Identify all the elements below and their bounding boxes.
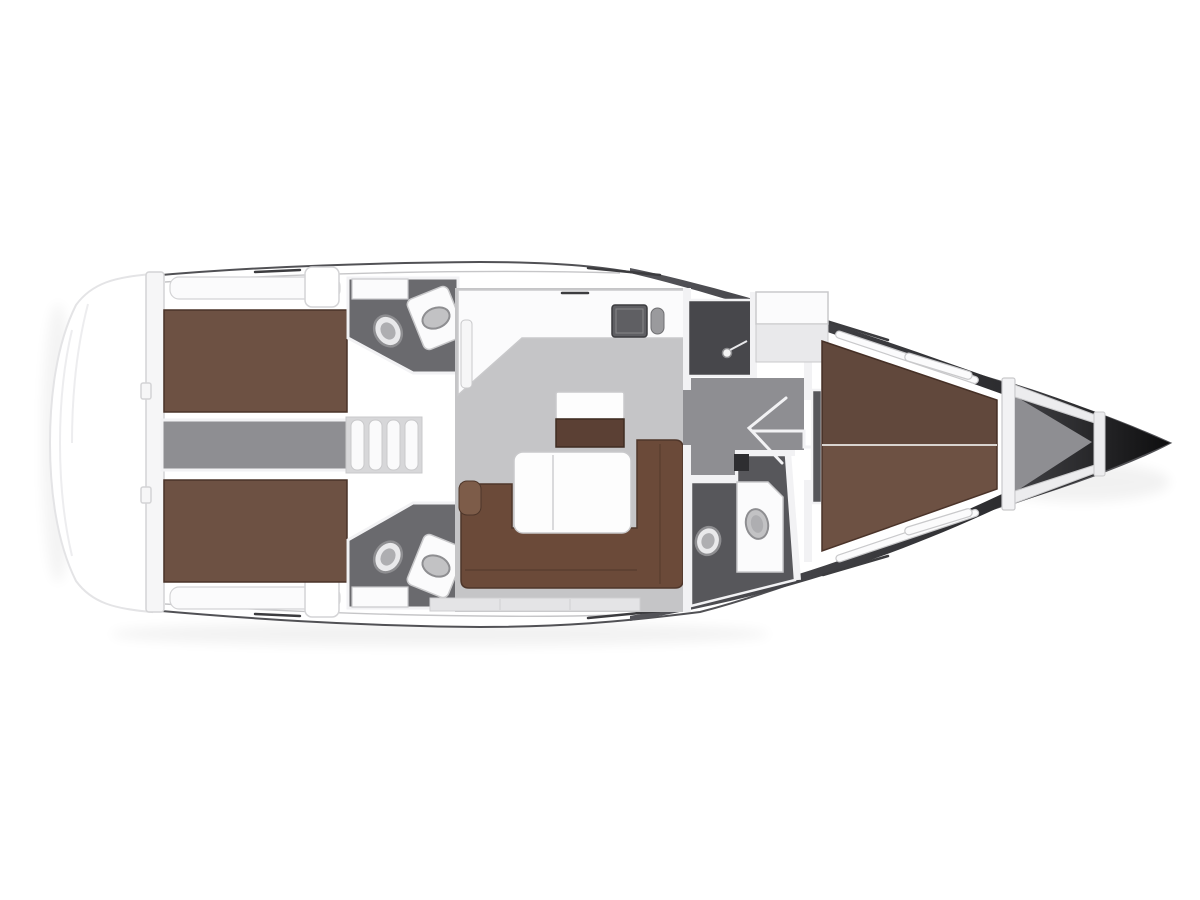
sailboat-interior-plan bbox=[0, 0, 1200, 900]
salon-cabinet bbox=[556, 419, 624, 447]
step-rib bbox=[387, 420, 400, 470]
aft-cabin-port-berth bbox=[164, 310, 347, 412]
deck-hatch-port bbox=[305, 267, 339, 307]
sofa-plinth bbox=[430, 598, 640, 611]
sofa-backrest-cushion bbox=[459, 481, 481, 515]
galley-drainer bbox=[651, 308, 664, 334]
yacht-floor-plan-canvas bbox=[0, 0, 1200, 900]
step-rib bbox=[369, 420, 382, 470]
step-rib bbox=[405, 420, 418, 470]
galley-sink bbox=[612, 305, 647, 337]
salon-cabinet-top bbox=[556, 392, 624, 419]
engine-walkway bbox=[162, 420, 348, 470]
wardrobe bbox=[756, 292, 828, 324]
transom-step-port bbox=[141, 383, 151, 399]
salon-table bbox=[514, 452, 631, 533]
forward-bulkhead bbox=[1002, 378, 1015, 510]
aft-cabin-starboard-berth bbox=[164, 480, 347, 582]
step-rib bbox=[351, 420, 364, 470]
water-heater bbox=[734, 454, 749, 471]
stem-fitting bbox=[1094, 412, 1105, 476]
deck-hatch-starboard bbox=[305, 577, 339, 617]
head-wall-a bbox=[691, 475, 737, 481]
transom-step-starboard bbox=[141, 487, 151, 503]
head-shelf bbox=[352, 587, 408, 607]
shower-compartment bbox=[688, 300, 752, 376]
head-shelf bbox=[352, 279, 408, 299]
wardrobe-recess bbox=[756, 324, 828, 362]
galley-fridge-panel bbox=[461, 320, 472, 388]
doorway-floor bbox=[683, 390, 691, 445]
forward-cabin-floor bbox=[812, 390, 822, 503]
salon bbox=[430, 288, 691, 612]
